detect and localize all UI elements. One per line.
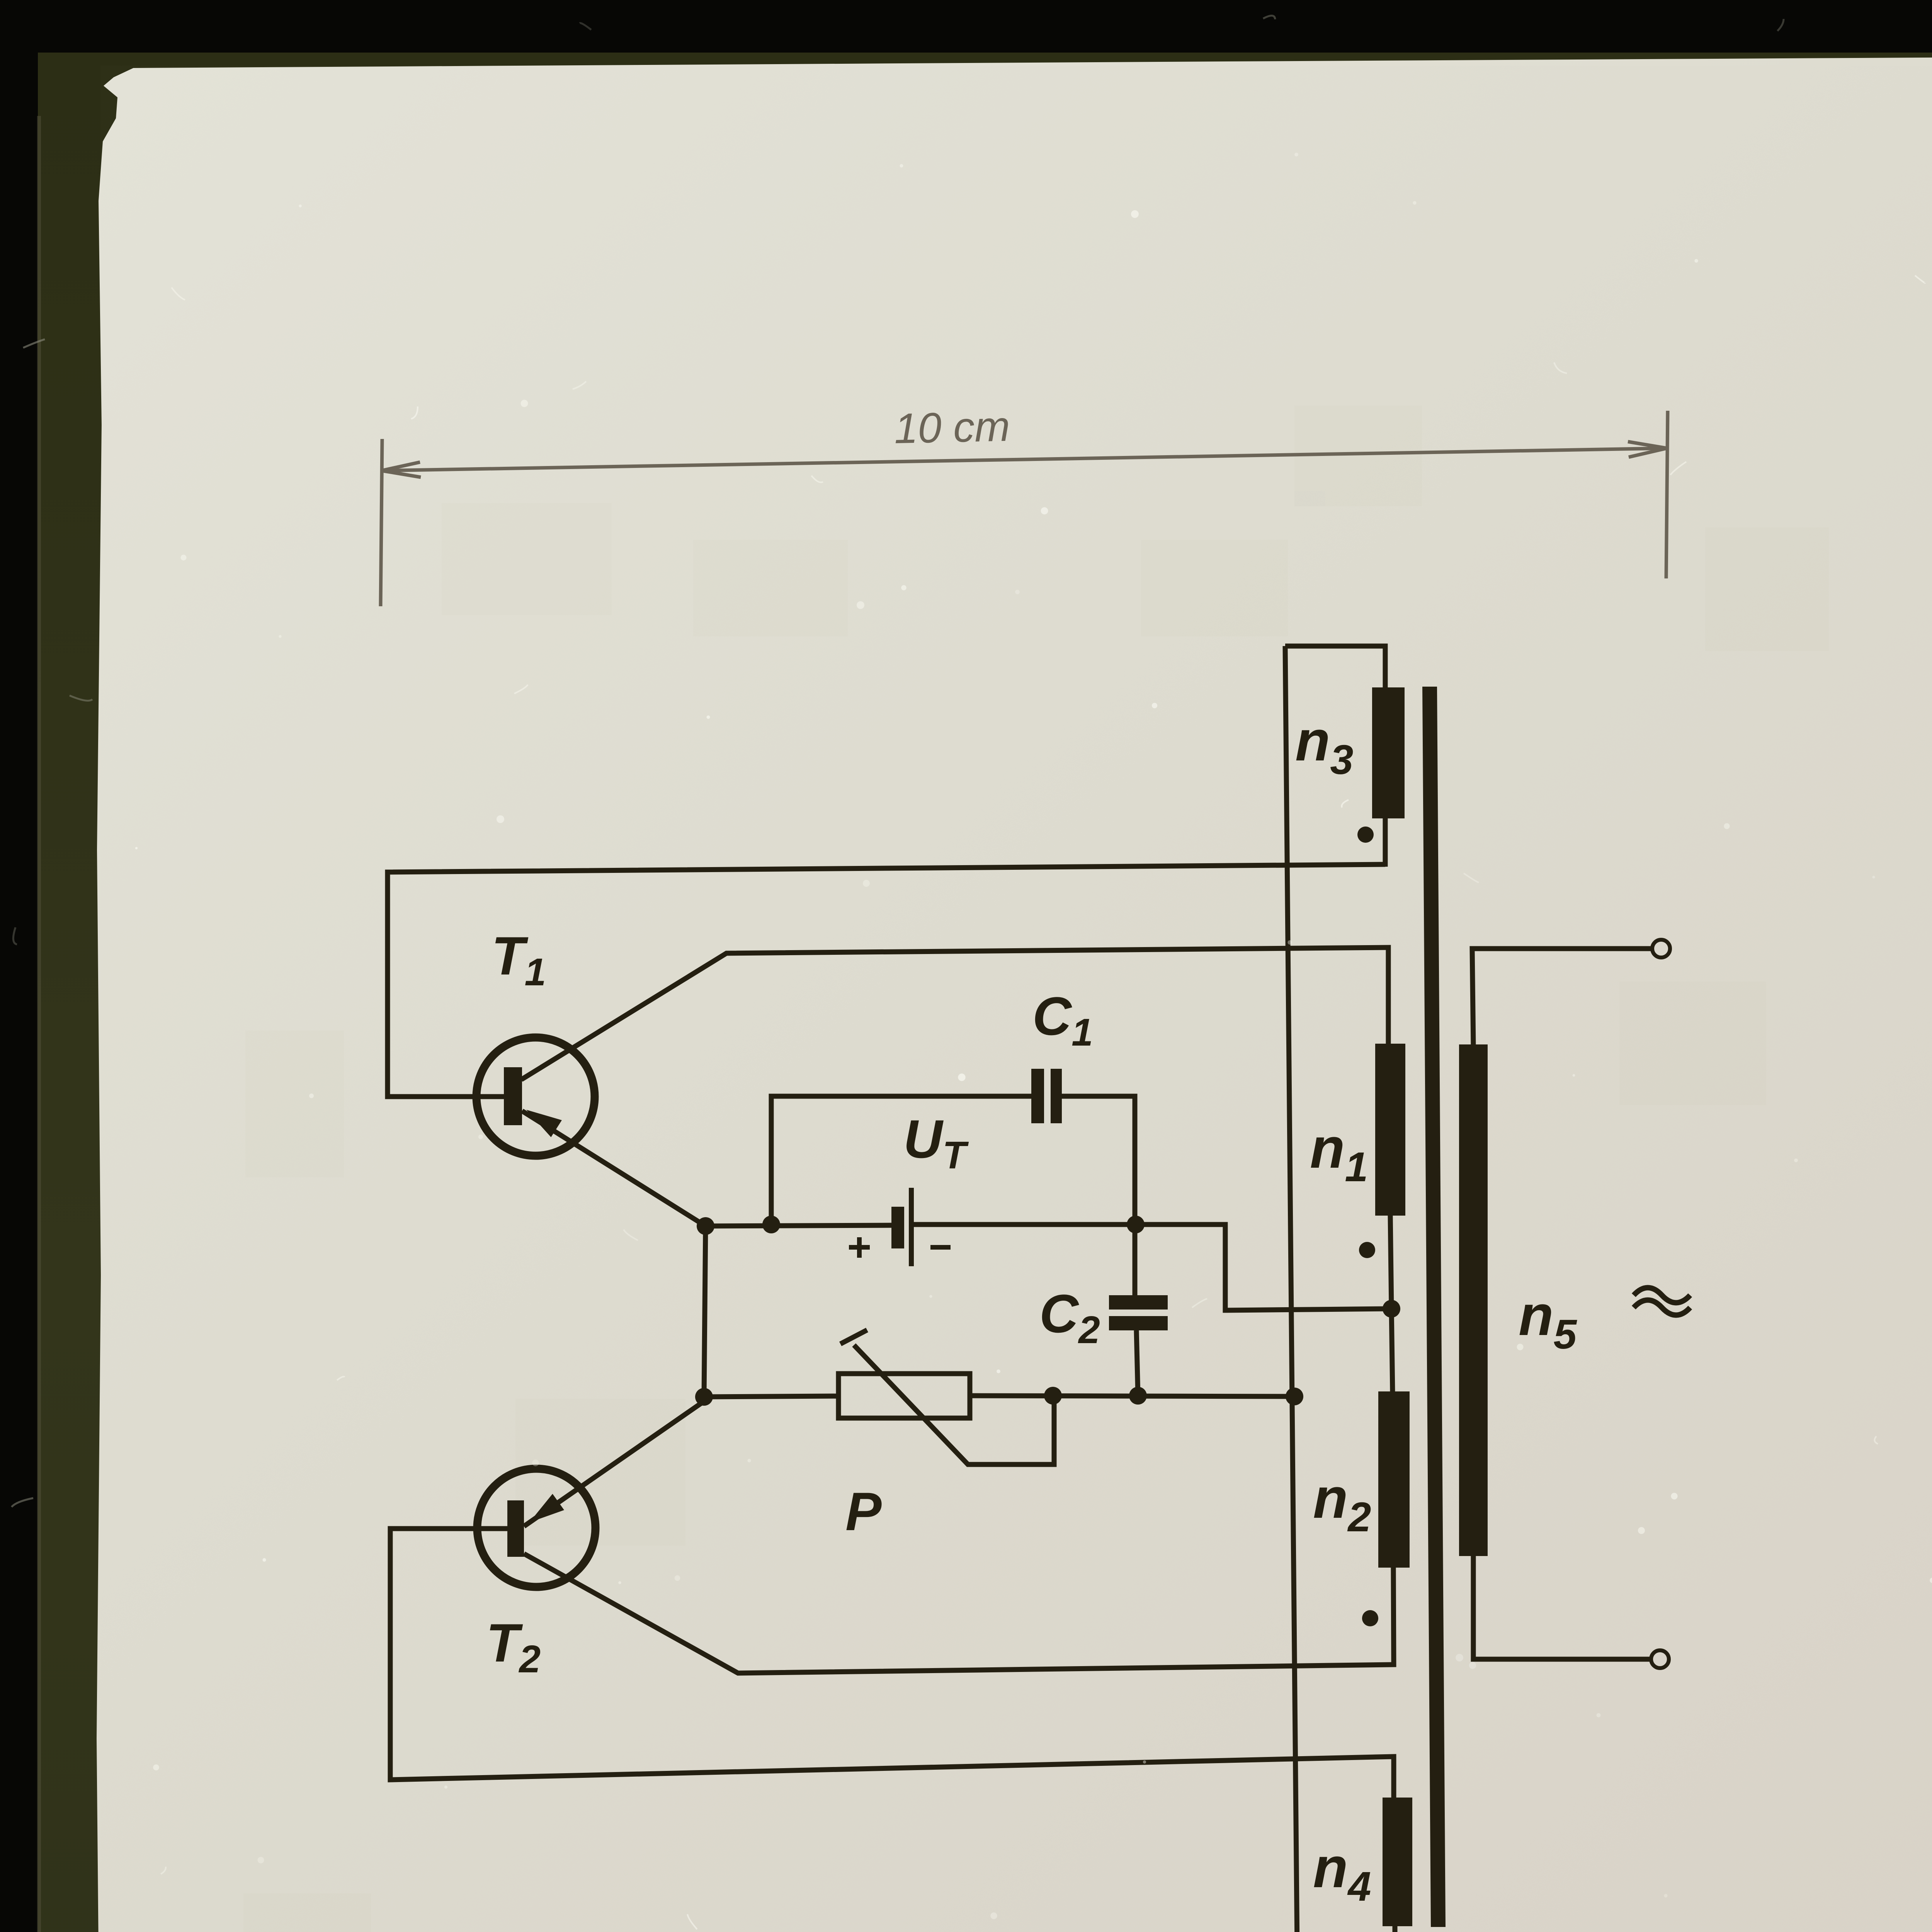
svg-text:10 cm: 10 cm (894, 403, 1010, 452)
svg-text:P: P (845, 1481, 882, 1542)
